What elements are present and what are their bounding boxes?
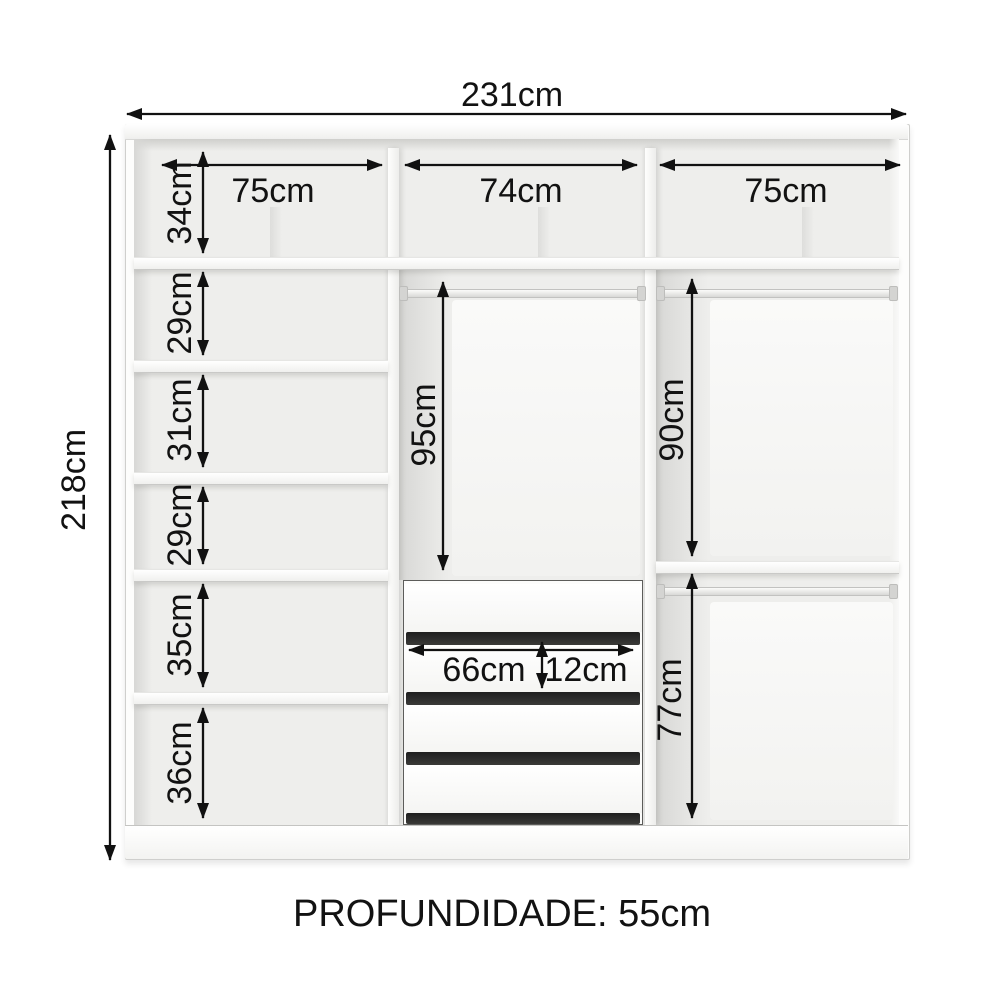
drawer-width-label: 66cm (442, 653, 525, 687)
left-shelf-3-label: 31cm (163, 378, 197, 461)
right-lower-label: 77cm (653, 658, 687, 741)
right-lower-rod-cap-left (656, 584, 665, 599)
middle-rod-cap-right (637, 286, 646, 301)
top-support-seam-left (270, 207, 282, 257)
top-shelf (134, 257, 899, 270)
depth-label: PROFUNDIDADE: 55cm (293, 893, 711, 936)
drawer-gap-1 (406, 632, 640, 645)
right-lower-hanging-rod (659, 587, 898, 596)
left-shelf-5-label: 35cm (163, 593, 197, 676)
drawer-1 (404, 584, 642, 632)
left-shelf-4-label: 29cm (163, 483, 197, 566)
total-height-label: 218cm (57, 429, 91, 531)
wardrobe-dimension-diagram: 231cm 218cm 75cm 74cm 75cm 34cm 29cm 31c… (0, 0, 1000, 1000)
left-shelf-1 (134, 360, 388, 373)
right-upper-label: 90cm (655, 378, 689, 461)
top-section-1-label: 75cm (231, 174, 314, 208)
right-lower-rod-cap-right (889, 584, 898, 599)
right-upper-rod-cap-left (656, 286, 665, 301)
drawer-gap-3 (406, 752, 640, 765)
top-support-seam-right (802, 207, 814, 257)
left-shelf-1-label: 34cm (163, 161, 197, 244)
left-shelf-4 (134, 692, 388, 705)
total-width-label: 231cm (461, 78, 563, 112)
middle-hanging-rod (402, 289, 644, 298)
drawer-height-label: 12cm (544, 653, 627, 687)
left-shelf-3 (134, 569, 388, 582)
wardrobe-base (125, 825, 908, 859)
left-shelf-6-label: 36cm (163, 721, 197, 804)
right-shelf (656, 561, 899, 574)
top-section-3-label: 75cm (744, 174, 827, 208)
drawer-gap-bottom (406, 813, 640, 824)
partition-left-middle (388, 148, 399, 825)
drawer-unit (403, 580, 643, 825)
drawer-3 (404, 705, 642, 752)
top-section-2-label: 74cm (479, 174, 562, 208)
right-upper-hanging-rod (659, 289, 898, 298)
interior-top-shadow (134, 139, 899, 151)
middle-rod-cap-left (399, 286, 408, 301)
drawer-4 (404, 765, 642, 813)
middle-hanging-label: 95cm (407, 383, 441, 466)
right-lower-backpanel (710, 602, 893, 820)
right-upper-backpanel (710, 300, 893, 556)
left-shelf-2-label: 29cm (163, 271, 197, 354)
wardrobe-top-panel (125, 124, 908, 140)
right-upper-rod-cap-right (889, 286, 898, 301)
top-support-seam-middle (538, 207, 550, 257)
middle-hanging-backpanel (452, 300, 640, 576)
drawer-gap-2 (406, 692, 640, 705)
